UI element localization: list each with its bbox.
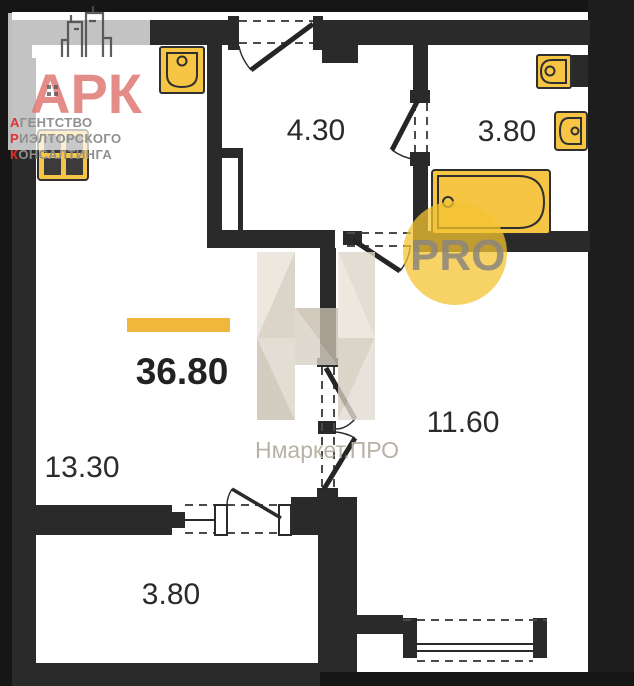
- room-label-living-kitchen: 13.30: [44, 451, 119, 484]
- logo-line1-rest: ГЕНТСТВО: [20, 115, 93, 130]
- bedroom-window-jamb-left: [403, 618, 417, 658]
- bath-counter-block: [570, 55, 588, 87]
- pro-badge-label: PRO: [410, 231, 505, 280]
- bathroom-sink-icon: [537, 55, 571, 88]
- nmarket-brand-label: Нмаркет.ПРО: [255, 437, 399, 463]
- balcony-door-arc: [227, 489, 232, 505]
- niche-stub: [222, 148, 243, 158]
- bedroom-window-jamb-right: [533, 618, 547, 658]
- agency-logo: АРК АГЕНТСТВО РИЭЛТОРСКОГО КОНСАЛТИНГА: [8, 6, 150, 162]
- wall-top-right: [358, 20, 590, 45]
- balcony-door-post: [279, 505, 291, 535]
- wall-block-entry: [322, 20, 358, 63]
- room-label-bathroom: 3.80: [478, 115, 536, 148]
- nmarket-letter-watermark: [257, 252, 375, 420]
- entrance-jamb-right: [313, 16, 323, 50]
- balcony-window-post: [215, 505, 227, 535]
- logo-line2-rest: ИЭЛТОРСКОГО: [19, 131, 121, 146]
- wall-balcony-bottom: [12, 663, 320, 686]
- logo-line3-rest: ОНСАЛТИНГА: [18, 147, 112, 162]
- balcony-window-jamb: [172, 512, 185, 528]
- central-door-cap-bottom: [317, 488, 338, 497]
- total-area-bar: [127, 318, 230, 332]
- entrance-door-arc: [239, 46, 251, 70]
- wall-kitchen-bottom: [12, 505, 172, 535]
- floor-plan-screenshot: АРК АГЕНТСТВО РИЭЛТОРСКОГО КОНСАЛТИНГА 3…: [0, 0, 634, 686]
- total-area-label: 36.80: [136, 351, 229, 392]
- niche-thin-wall: [238, 158, 243, 232]
- toilet-icon: [555, 112, 587, 150]
- wall-bedroom-bottom: [318, 615, 403, 634]
- logo-text-line1: АГЕНТСТВО: [10, 115, 93, 130]
- wall-corridor-bottom: [207, 230, 335, 248]
- room-label-hallway: 4.30: [287, 114, 345, 147]
- floor-plan-canvas: АРК АГЕНТСТВО РИЭЛТОРСКОГО КОНСАЛТИНГА 3…: [0, 0, 634, 686]
- logo-text-line3: КОНСАЛТИНГА: [10, 147, 112, 162]
- wall-balcony-door-right: [291, 505, 320, 535]
- central-door-arc-upper: [336, 419, 355, 429]
- entrance-door-leaf: [251, 24, 313, 70]
- wall-balcony-divider-low: [318, 630, 357, 672]
- balcony-door-leaf: [232, 489, 281, 518]
- logo-line1-initial: А: [10, 115, 20, 130]
- room-label-balcony: 3.80: [142, 578, 200, 611]
- kitchen-sink-icon: [160, 47, 204, 93]
- logo-line3-initial: К: [10, 147, 18, 162]
- wall-corridor-left: [207, 45, 222, 230]
- wall-bath-upper: [413, 45, 428, 92]
- logo-text-line2: РИЭЛТОРСКОГО: [10, 131, 122, 146]
- room-label-bedroom: 11.60: [427, 406, 500, 439]
- logo-line2-initial: Р: [10, 131, 19, 146]
- entrance-jamb-left: [228, 16, 239, 50]
